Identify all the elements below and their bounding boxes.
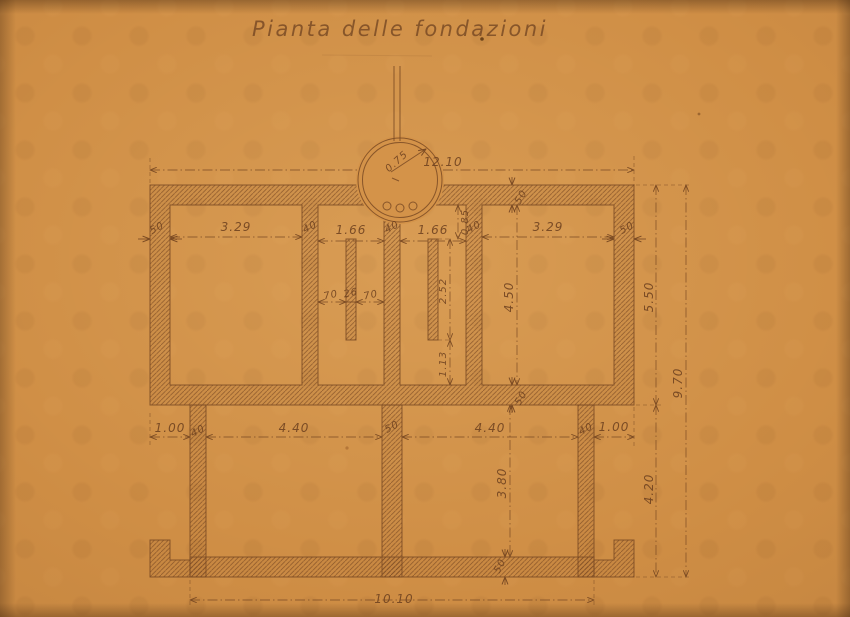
bottom-wall-band	[190, 557, 594, 577]
dim-pilaster-width: 26	[343, 287, 360, 301]
dim-ext-right: 1.00	[599, 420, 630, 434]
right-foot	[594, 540, 634, 577]
dim-right-upper: 5.50	[642, 282, 656, 313]
ink-speck-2	[698, 113, 701, 116]
foundation-plan-svg: Pianta delle fondazioni 0.75 12.10 50 3.…	[0, 0, 850, 617]
dim-room-tl-width: 3.29	[221, 220, 252, 234]
dim-pilaster-bottom: 1.13	[438, 351, 449, 377]
dim-corridor-left-width: 1.66	[336, 223, 367, 237]
dim-ext-left: 1.00	[155, 421, 186, 435]
ink-speck-1	[480, 37, 484, 41]
well-mask	[356, 136, 444, 224]
drawing-sheet: Pianta delle fondazioni 0.75 12.10 50 3.…	[0, 0, 850, 617]
ink-speck-3	[345, 446, 348, 449]
dim-room-br-width: 4.40	[475, 421, 506, 435]
dim-pilaster-length: 2.52	[438, 278, 449, 304]
dim-room-tr-width: 3.29	[533, 220, 564, 234]
dim-pilaster-left-b: 70	[363, 289, 380, 303]
dim-room-tr-height: 4.50	[502, 282, 516, 313]
dim-room-bl-width: 4.40	[279, 421, 310, 435]
dim-right-lower: 4.20	[642, 474, 656, 505]
dim-offset-pilaster-top: 0.85	[460, 209, 471, 235]
walls-group	[150, 185, 634, 577]
dim-pilaster-left-a: 70	[323, 289, 340, 303]
dim-top-width: 12.10	[423, 155, 462, 169]
dim-corridor-right-width: 1.66	[418, 223, 449, 237]
dim-right-total: 9.70	[671, 368, 685, 399]
drawing-title: Pianta delle fondazioni	[252, 17, 548, 41]
well-group	[356, 66, 444, 224]
pilaster-right	[428, 239, 438, 340]
left-foot	[150, 540, 190, 577]
title-underline	[322, 55, 432, 56]
labels-group: Pianta delle fondazioni 0.75 12.10 50 3.…	[148, 17, 685, 606]
dim-bottom-width: 10.10	[374, 592, 413, 606]
dim-room-br-height: 3.80	[495, 468, 509, 499]
